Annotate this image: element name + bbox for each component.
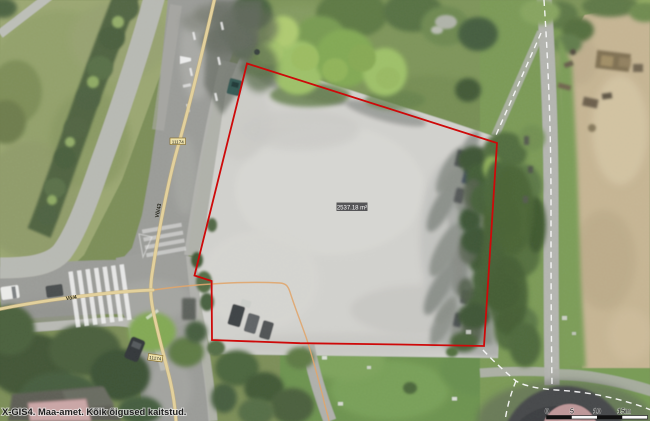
svg-text:11174: 11174	[172, 139, 185, 144]
svg-text:X-GIS4. Maa-amet. Kõik õigused: X-GIS4. Maa-amet. Kõik õigused kaitstud.	[2, 406, 186, 417]
svg-text:0: 0	[545, 409, 549, 416]
svg-text:5: 5	[570, 409, 574, 416]
svg-text:10: 10	[593, 409, 601, 416]
svg-text:2537.18 m²: 2537.18 m²	[337, 205, 367, 211]
svg-text:15m: 15m	[617, 409, 631, 416]
